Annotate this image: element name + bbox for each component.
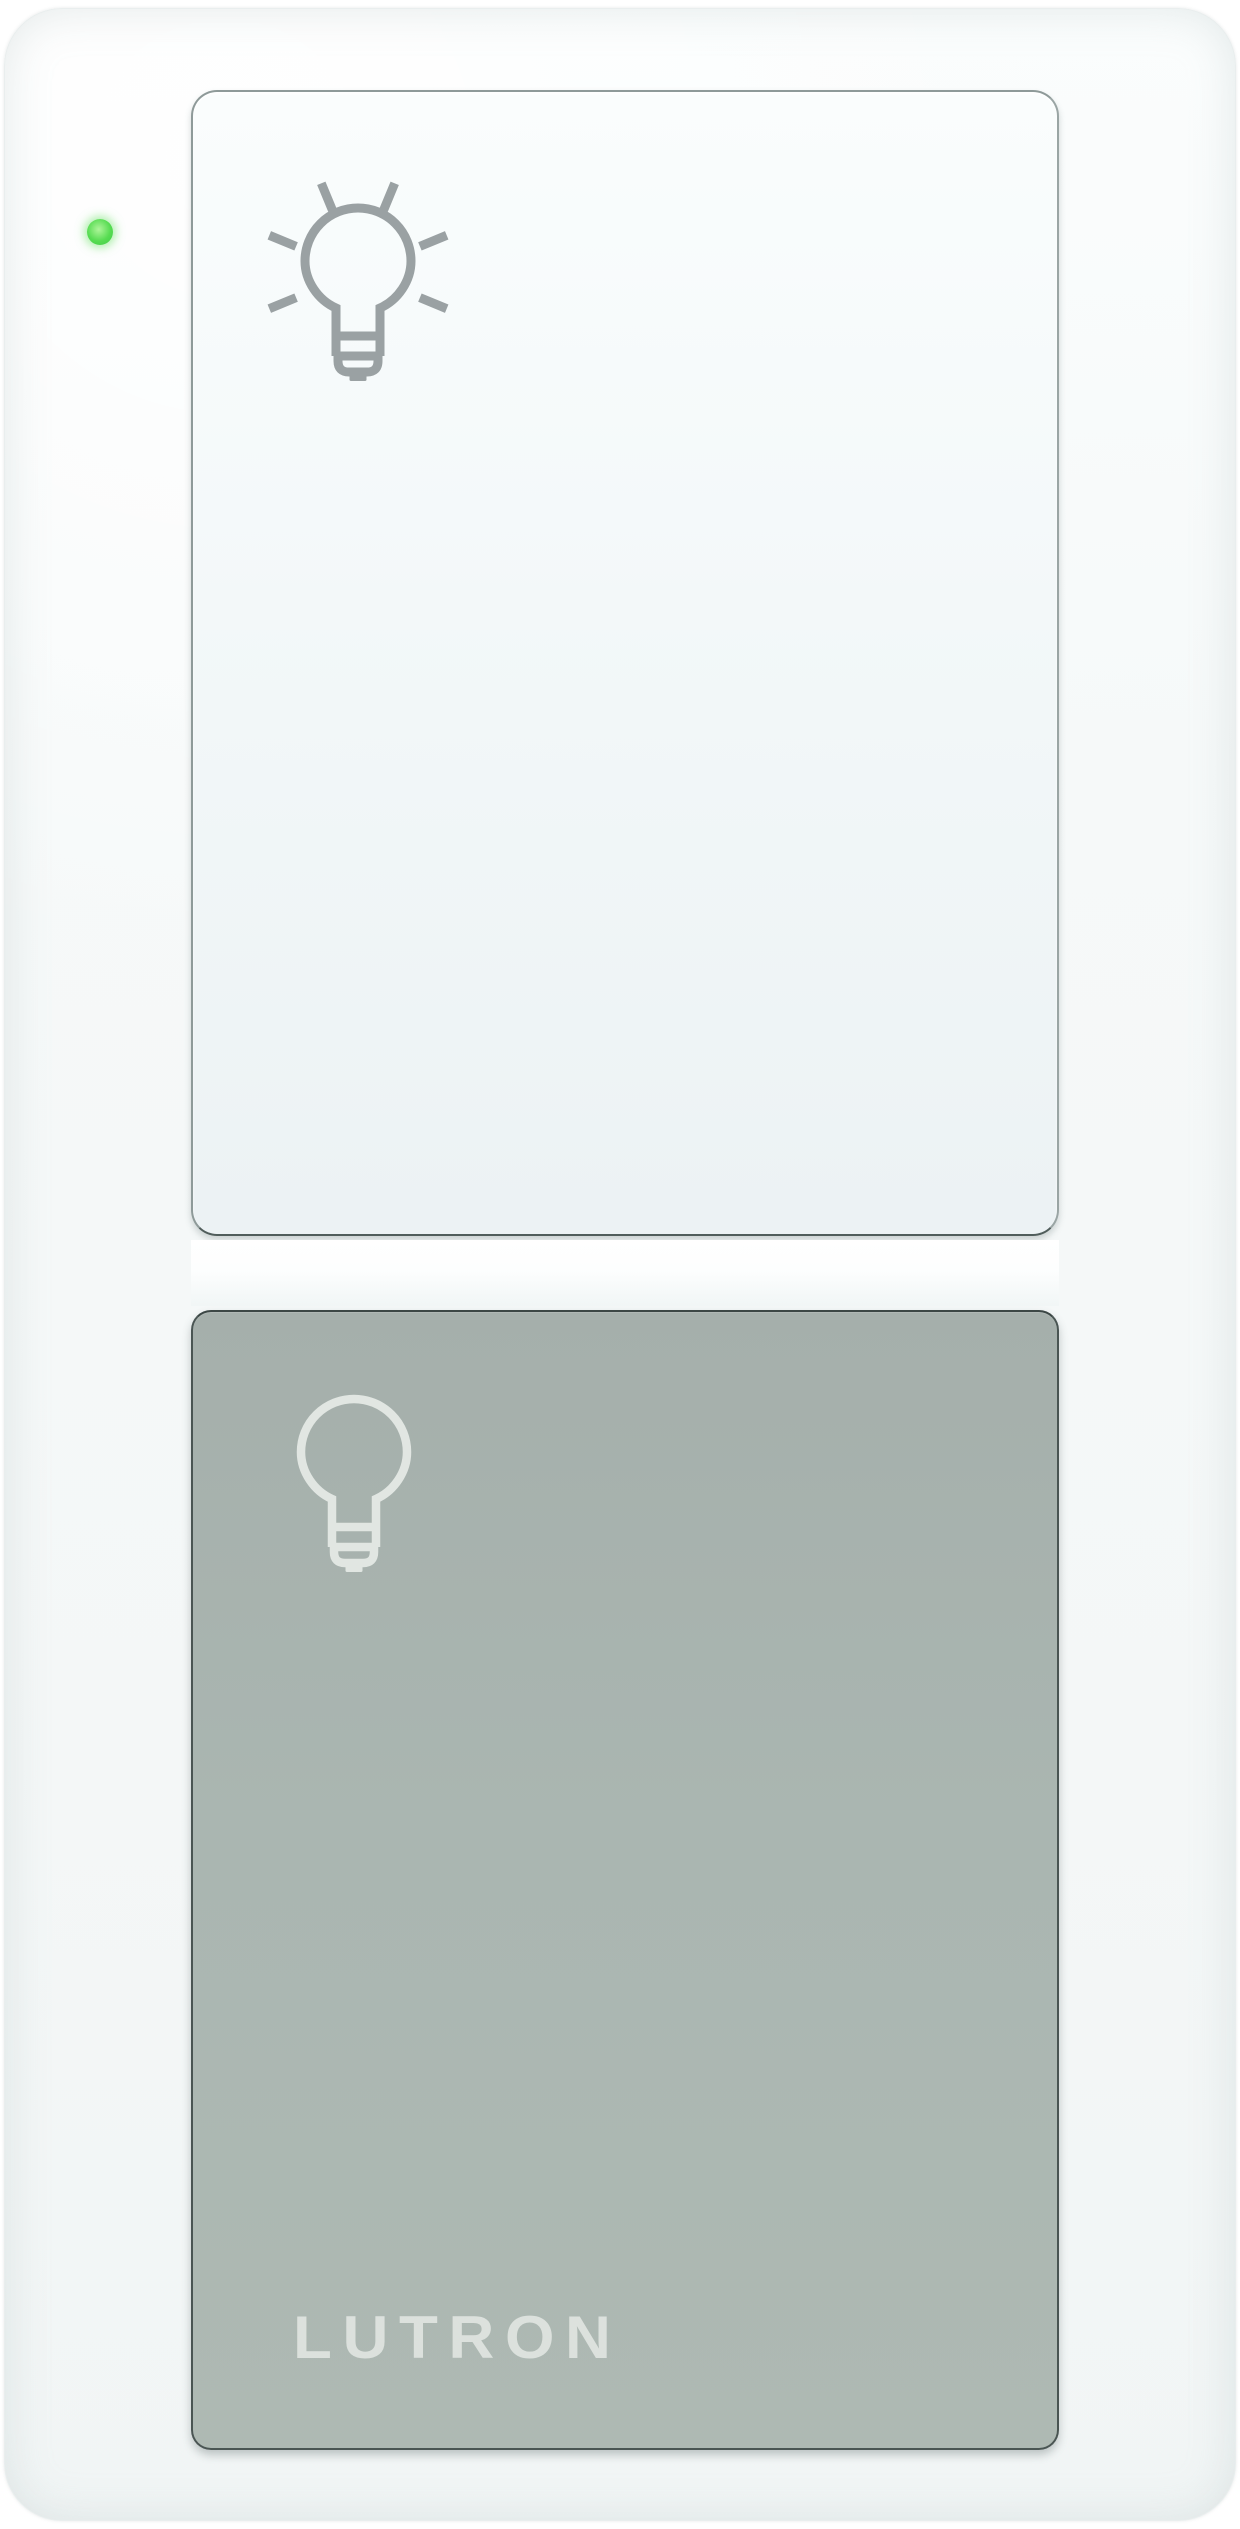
light-bulb-off-icon — [244, 1353, 464, 1575]
button-divider — [191, 1240, 1059, 1306]
light-on-button[interactable] — [191, 90, 1059, 1236]
status-led — [87, 219, 113, 245]
product-photo-lutron-pico-remote: LUTRON — [0, 0, 1240, 2529]
light-bulb-on-icon — [248, 162, 468, 384]
remote-body: LUTRON — [4, 8, 1236, 2521]
brand-label: LUTRON — [293, 2308, 622, 2368]
light-off-button[interactable]: LUTRON — [191, 1310, 1059, 2450]
